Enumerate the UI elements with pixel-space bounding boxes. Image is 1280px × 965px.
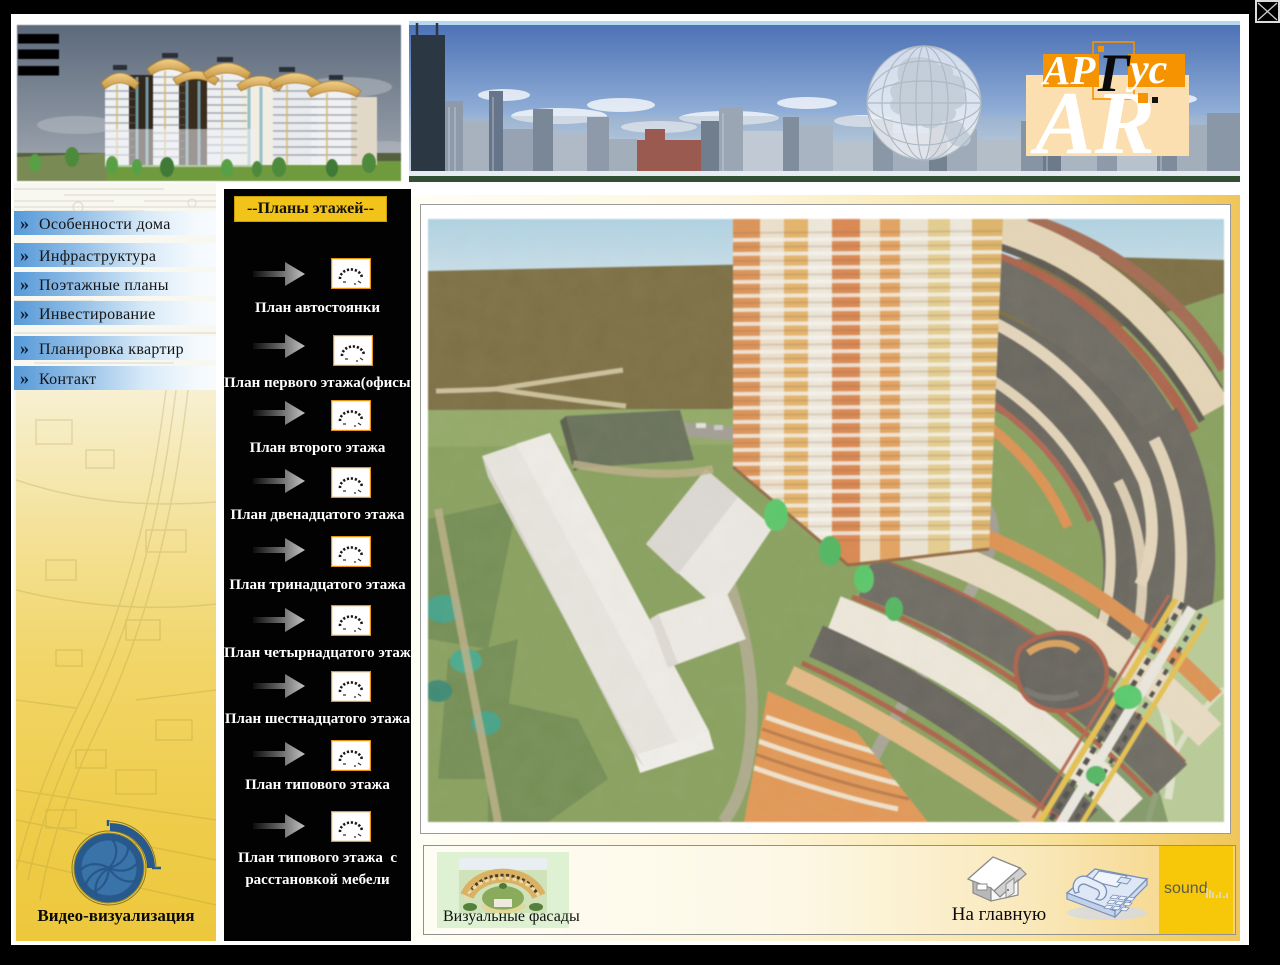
- svg-text:АR: АR: [1030, 74, 1155, 173]
